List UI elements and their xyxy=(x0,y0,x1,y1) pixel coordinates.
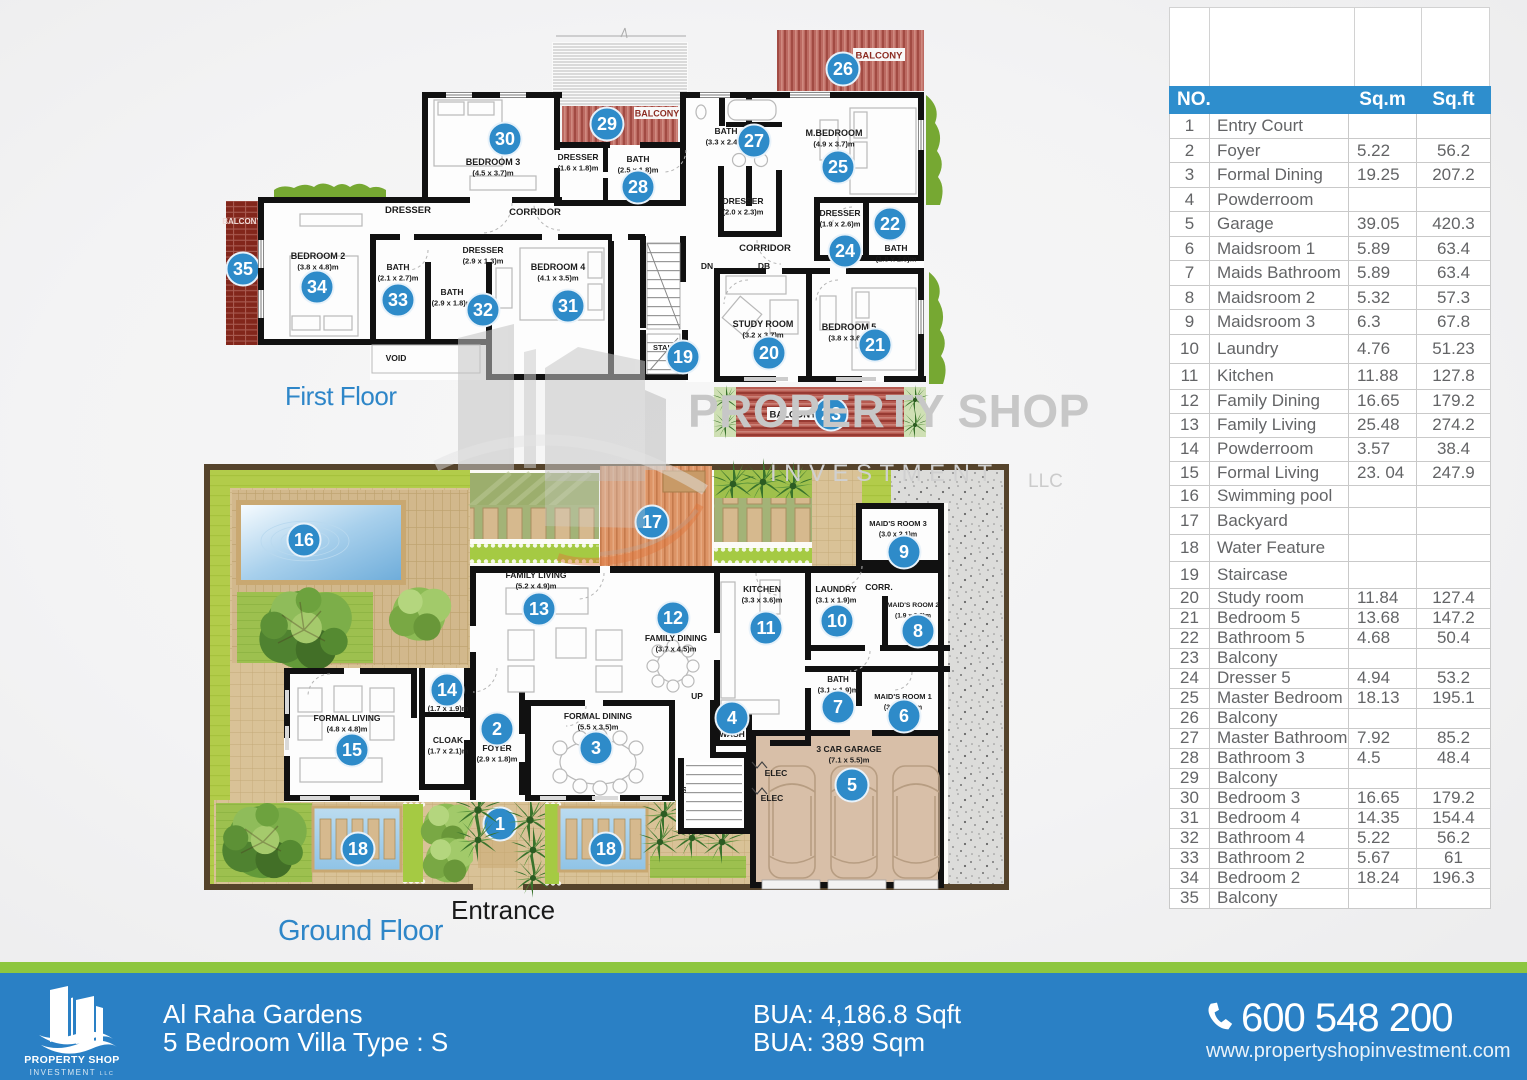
svg-text:3 CAR GARAGE: 3 CAR GARAGE xyxy=(816,744,882,754)
svg-text:27: 27 xyxy=(744,131,764,151)
svg-text:(4.9 x 3.7)m: (4.9 x 3.7)m xyxy=(813,140,855,149)
svg-text:2: 2 xyxy=(492,719,502,739)
svg-text:11: 11 xyxy=(756,618,775,638)
svg-text:BATH: BATH xyxy=(441,287,464,297)
svg-text:Ground Floor: Ground Floor xyxy=(278,915,444,947)
svg-text:BEDROOM 3: BEDROOM 3 xyxy=(466,157,521,167)
svg-text:21: 21 xyxy=(865,335,885,355)
svg-text:INVESTMENT LLC: INVESTMENT LLC xyxy=(30,1068,115,1077)
svg-text:VOID: VOID xyxy=(386,353,407,363)
svg-text:13: 13 xyxy=(529,599,549,619)
svg-text:Entrance: Entrance xyxy=(451,895,555,925)
svg-text:DRESSER: DRESSER xyxy=(557,152,598,162)
svg-text:35: 35 xyxy=(233,259,253,279)
svg-text:BALCONY: BALCONY xyxy=(635,109,680,119)
svg-text:34: 34 xyxy=(307,277,327,297)
svg-text:DRESSER: DRESSER xyxy=(722,196,763,206)
svg-text:20: 20 xyxy=(759,343,779,363)
svg-text:14: 14 xyxy=(437,680,457,700)
svg-text:STUDY ROOM: STUDY ROOM xyxy=(733,319,794,329)
svg-text:KITCHEN: KITCHEN xyxy=(743,584,781,594)
svg-text:FORMAL LIVING: FORMAL LIVING xyxy=(314,713,381,723)
svg-text:26: 26 xyxy=(833,59,853,79)
svg-text:(4.5 x 3.7)m: (4.5 x 3.7)m xyxy=(472,169,514,178)
svg-text:(1.6 x 1.8)m: (1.6 x 1.8)m xyxy=(558,164,599,173)
svg-text:DRESSER: DRESSER xyxy=(385,205,431,216)
svg-text:7: 7 xyxy=(833,697,843,717)
svg-text:(1.7 x 2.1)m: (1.7 x 2.1)m xyxy=(428,747,469,756)
svg-text:29: 29 xyxy=(597,114,617,134)
svg-text:BALCONY: BALCONY xyxy=(856,51,904,62)
svg-text:(2.9 x 1.3)m: (2.9 x 1.3)m xyxy=(463,257,504,266)
svg-text:DN: DN xyxy=(701,261,713,271)
svg-text:(2.1 x 2.7)m: (2.1 x 2.7)m xyxy=(378,274,419,283)
svg-text:BATH: BATH xyxy=(715,126,738,136)
svg-text:(3.7 x 4.5)m: (3.7 x 4.5)m xyxy=(656,645,697,654)
svg-text:16: 16 xyxy=(294,530,314,550)
svg-text:MAID'S ROOM 3: MAID'S ROOM 3 xyxy=(869,519,927,528)
svg-text:INVESTMENT: INVESTMENT xyxy=(770,460,1000,487)
svg-text:BATH: BATH xyxy=(827,675,849,684)
svg-text:25: 25 xyxy=(828,157,848,177)
svg-text:CORR.: CORR. xyxy=(865,582,892,592)
svg-text:CLOAK: CLOAK xyxy=(433,735,464,745)
svg-text:(2.0 x 2.3)m: (2.0 x 2.3)m xyxy=(723,208,764,217)
svg-text:(5.2 x 4.9)m: (5.2 x 4.9)m xyxy=(516,582,557,591)
svg-text:ELEC: ELEC xyxy=(761,793,784,803)
svg-text:9: 9 xyxy=(899,542,909,562)
svg-text:(3.3 x 3.6)m: (3.3 x 3.6)m xyxy=(742,596,783,605)
svg-text:DRESSER: DRESSER xyxy=(819,208,860,218)
svg-text:12: 12 xyxy=(663,608,683,628)
svg-text:BEDROOM 2: BEDROOM 2 xyxy=(291,251,346,261)
svg-text:BATH: BATH xyxy=(885,243,908,253)
svg-text:(3.1 x 1.9)m: (3.1 x 1.9)m xyxy=(816,596,857,605)
svg-text:28: 28 xyxy=(628,177,648,197)
svg-text:5: 5 xyxy=(847,775,857,795)
svg-text:LAUNDRY: LAUNDRY xyxy=(815,584,857,594)
svg-text:22: 22 xyxy=(880,214,900,234)
svg-text:PROPERTY SHOP: PROPERTY SHOP xyxy=(24,1054,119,1066)
svg-text:(1.8 x 2.6)m: (1.8 x 2.6)m xyxy=(876,255,917,264)
svg-text:M.BEDROOM: M.BEDROOM xyxy=(806,128,863,138)
svg-text:8: 8 xyxy=(913,621,923,641)
svg-text:33: 33 xyxy=(388,290,408,310)
svg-text:24: 24 xyxy=(835,241,855,261)
svg-text:(4.8 x 4.8)m: (4.8 x 4.8)m xyxy=(327,725,368,734)
svg-text:30: 30 xyxy=(495,129,515,149)
svg-text:4: 4 xyxy=(727,708,737,728)
svg-text:DB: DB xyxy=(758,261,770,271)
svg-text:10: 10 xyxy=(827,611,847,631)
svg-text:15: 15 xyxy=(342,740,362,760)
svg-text:ELEC: ELEC xyxy=(765,768,788,778)
svg-text:6: 6 xyxy=(899,706,909,726)
svg-text:DRESSER: DRESSER xyxy=(462,245,503,255)
svg-text:BATH: BATH xyxy=(387,262,410,272)
svg-text:LLC: LLC xyxy=(1028,471,1063,492)
svg-text:1: 1 xyxy=(495,814,505,834)
svg-text:32: 32 xyxy=(473,300,493,320)
svg-text:BALCONY: BALCONY xyxy=(222,217,262,226)
svg-text:(4.1 x 3.5)m: (4.1 x 3.5)m xyxy=(537,274,579,283)
svg-text:MAID'S ROOM 2: MAID'S ROOM 2 xyxy=(887,602,939,609)
svg-text:First Floor: First Floor xyxy=(285,381,397,411)
svg-text:18: 18 xyxy=(596,839,616,859)
svg-text:FORMAL DINING: FORMAL DINING xyxy=(564,711,633,721)
svg-text:18: 18 xyxy=(348,839,368,859)
svg-text:PROPERTY SHOP: PROPERTY SHOP xyxy=(688,385,1090,437)
svg-text:UP: UP xyxy=(691,691,703,701)
svg-text:3: 3 xyxy=(591,738,601,758)
svg-text:(2.9 x 1.8)m: (2.9 x 1.8)m xyxy=(477,755,518,764)
svg-text:CORRIDOR: CORRIDOR xyxy=(739,243,791,254)
svg-text:31: 31 xyxy=(558,296,578,316)
svg-text:(7.1 x 5.5)m: (7.1 x 5.5)m xyxy=(829,756,870,765)
svg-text:BATH: BATH xyxy=(627,154,650,164)
svg-text:19: 19 xyxy=(673,347,693,367)
svg-text:FAMILY LIVING: FAMILY LIVING xyxy=(506,570,567,580)
svg-text:CORRIDOR: CORRIDOR xyxy=(509,207,561,218)
svg-text:BEDROOM 4: BEDROOM 4 xyxy=(531,262,586,272)
svg-text:(1.9 x 2.6)m: (1.9 x 2.6)m xyxy=(820,220,861,229)
svg-text:(5.5 x 3.5)m: (5.5 x 3.5)m xyxy=(578,723,619,732)
